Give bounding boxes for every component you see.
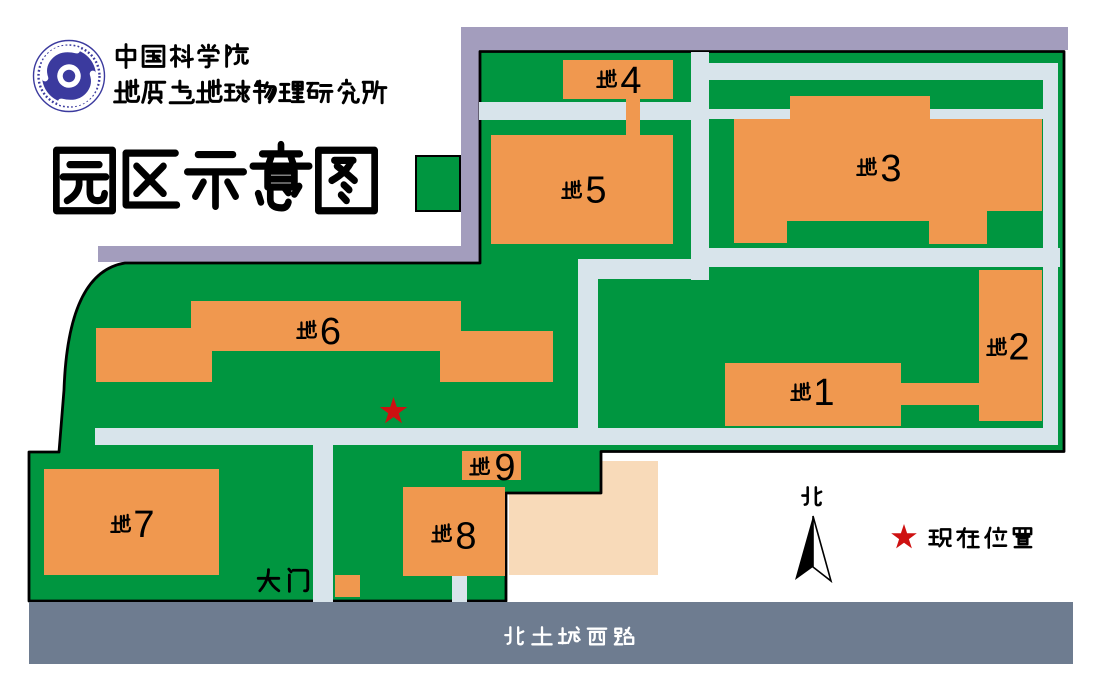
svg-text:7: 7 bbox=[133, 504, 154, 546]
svg-text:4: 4 bbox=[620, 60, 641, 102]
svg-text:9: 9 bbox=[494, 447, 515, 489]
svg-text:8: 8 bbox=[455, 516, 476, 558]
svg-text:2: 2 bbox=[1008, 327, 1029, 369]
svg-text:5: 5 bbox=[585, 170, 606, 212]
svg-text:3: 3 bbox=[880, 148, 901, 190]
svg-text:1: 1 bbox=[813, 372, 834, 414]
svg-text:6: 6 bbox=[320, 311, 341, 353]
